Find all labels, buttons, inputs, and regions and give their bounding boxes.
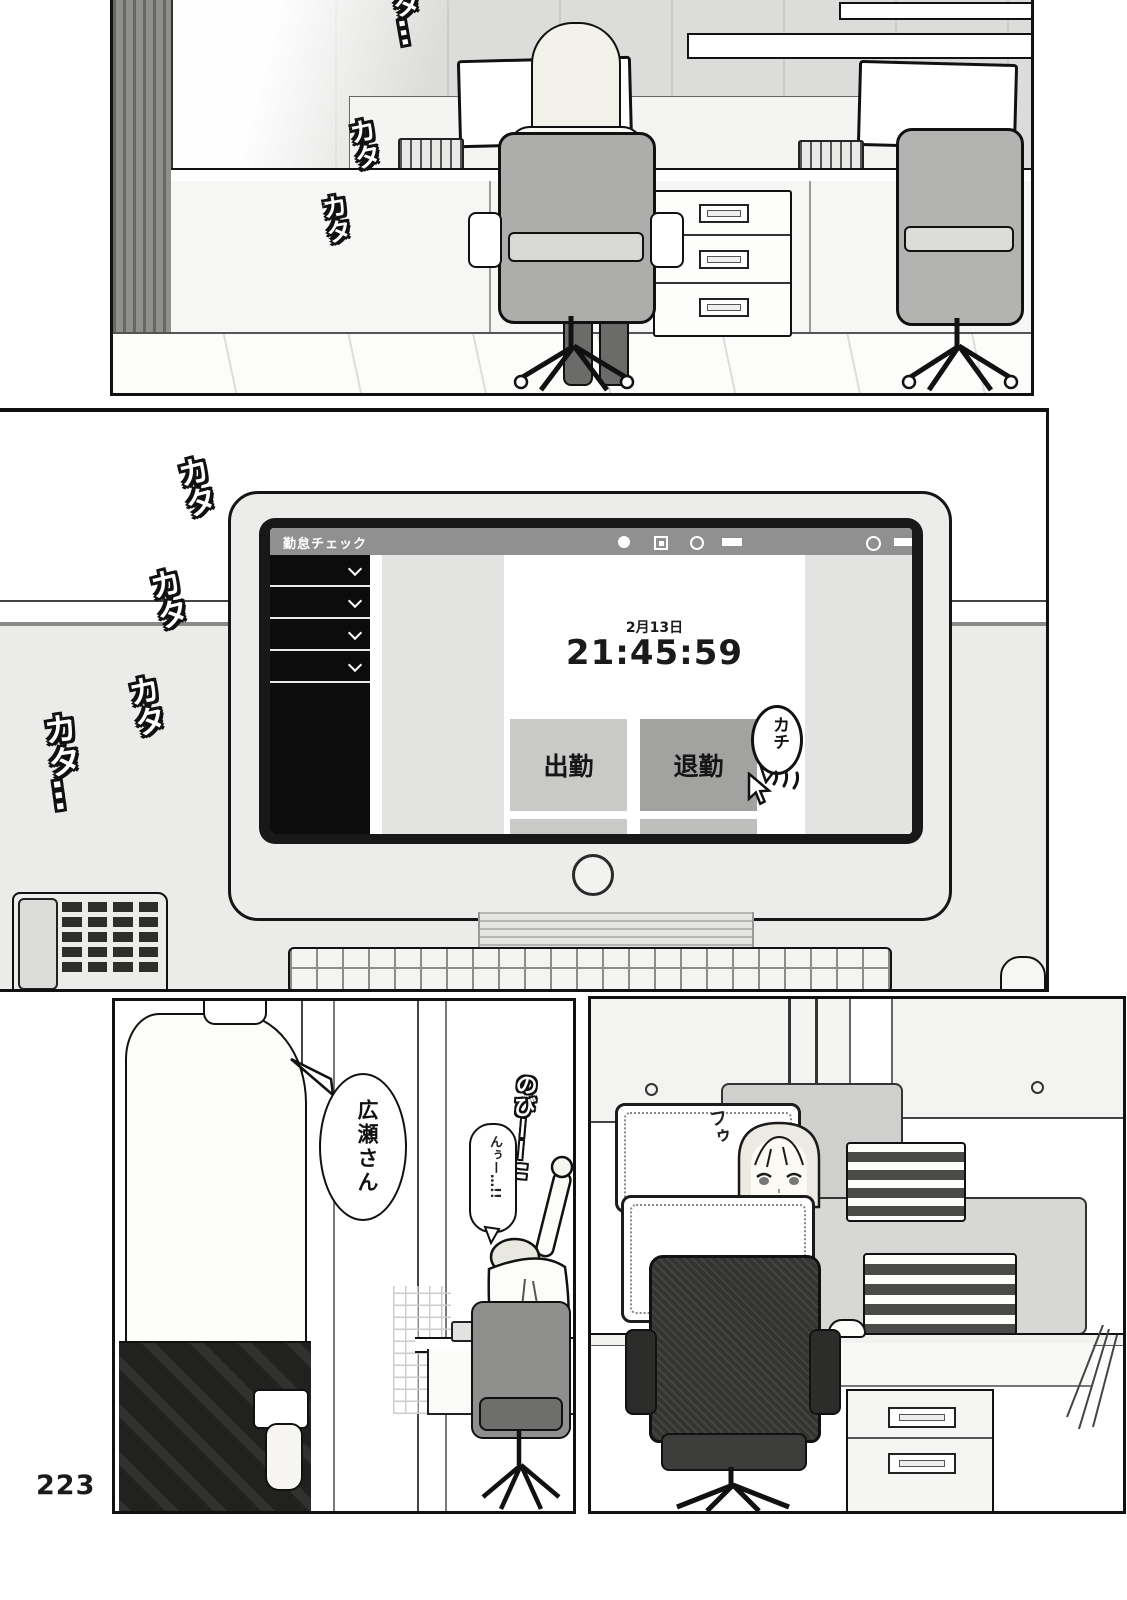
chair-lumbar-band [904,226,1014,252]
clock-in-button[interactable]: 出勤 [510,719,627,811]
chair-armrest [650,212,684,268]
standing-man-hand [265,1423,303,1491]
keyboard[interactable] [288,947,892,992]
grid-button-partial[interactable] [510,819,627,834]
app-titlebar: 勤怠チェック [270,528,912,555]
panel-hirose-peek: フゥ [588,996,1126,1514]
chevron-down-icon [348,594,362,608]
grid-button-partial[interactable] [640,819,757,834]
click-sfx-text: カチ [767,716,792,750]
chair-armrest [809,1329,841,1415]
phone-handset [18,898,58,990]
chair-seat [661,1433,807,1471]
sidebar-menu-item[interactable] [270,555,370,587]
click-strokes [770,764,804,794]
panel-office-overview: カタ… カタ カタ [110,0,1034,396]
dark-wall-column [113,0,173,340]
manga-page: カタ… カタ カタ カタ カタ カタ カタ… 勤怠チェック [0,0,1127,1600]
monitor-logo [572,854,614,896]
filled-circle-icon[interactable] [618,536,630,548]
pillar-line [417,1001,419,1511]
content-left-column [382,555,504,834]
cabinet [891,999,1125,1119]
page-number: 223 [36,1470,95,1501]
app-sidebar [270,555,370,834]
grunt-text: んぅー…!! [485,1135,504,1199]
sidebar-menu-item[interactable] [270,651,370,683]
ceiling-beam [839,2,1033,20]
grunt-bubble: んぅー…!! [469,1123,517,1233]
monitor: 勤怠チェック [228,491,952,921]
cabinet-knob [645,1083,658,1096]
pillar-line [445,1001,447,1511]
speech-bubble: 広瀬さん [319,1073,407,1221]
office-chair-occupied [498,132,656,324]
bar-icon[interactable] [722,538,742,546]
document-tray-stack [863,1253,1017,1337]
monitor-stand [478,912,754,950]
grunt-bubble-tail [481,1225,503,1245]
office-chair-dark [649,1255,821,1443]
sfx-typing: カタ [165,451,224,522]
mouse[interactable] [1000,956,1046,992]
attendance-app-window: 勤怠チェック [270,528,912,834]
cabinet-knob [1031,1081,1044,1094]
phone-keypad [62,902,158,986]
drawer-pedestal [846,1389,994,1514]
clock-time: 21:45:59 [504,633,805,673]
stop-square-icon[interactable] [654,536,668,550]
standing-man-shirt [125,1013,307,1351]
chair-seat [479,1397,563,1431]
desk-phone [398,138,464,172]
app-content: 2月13日 21:45:59 出勤 退勤 [370,555,912,834]
content-right-column [805,555,912,834]
speech-text: 広瀬さん [352,1099,382,1195]
speed-lines [1059,1325,1121,1435]
panel-hirose-call: 広瀬さん のびーー!!… んぅー…!! [112,998,576,1514]
chair-base [667,1467,797,1511]
monitor-screen: 勤怠チェック [259,518,923,844]
ring-icon[interactable] [690,536,704,550]
sidebar-menu-item[interactable] [270,587,370,619]
desk-phone [12,892,168,992]
chair-armrest [625,1329,657,1415]
chair-lumbar-band [508,232,644,262]
chair-base [511,316,637,392]
app-title: 勤怠チェック [283,533,367,552]
standing-man-collar [203,1001,267,1025]
ring-icon[interactable] [866,536,881,551]
clock-out-button[interactable]: 退勤 [640,719,757,811]
chevron-down-icon [348,626,362,640]
chevron-down-icon [348,658,362,672]
long-bar-icon[interactable] [894,538,912,546]
document-tray-stack [846,1142,966,1222]
chair-base [899,318,1019,392]
speech-bubble-tail [287,1055,337,1103]
sidebar-menu-item[interactable] [270,619,370,651]
chair-base [477,1431,565,1511]
ceiling-beam [687,33,1033,59]
panel-monitor-closeup: カタ カタ カタ カタ… 勤怠チェック [0,408,1049,992]
chair-armrest [468,212,502,268]
chevron-down-icon [348,562,362,576]
